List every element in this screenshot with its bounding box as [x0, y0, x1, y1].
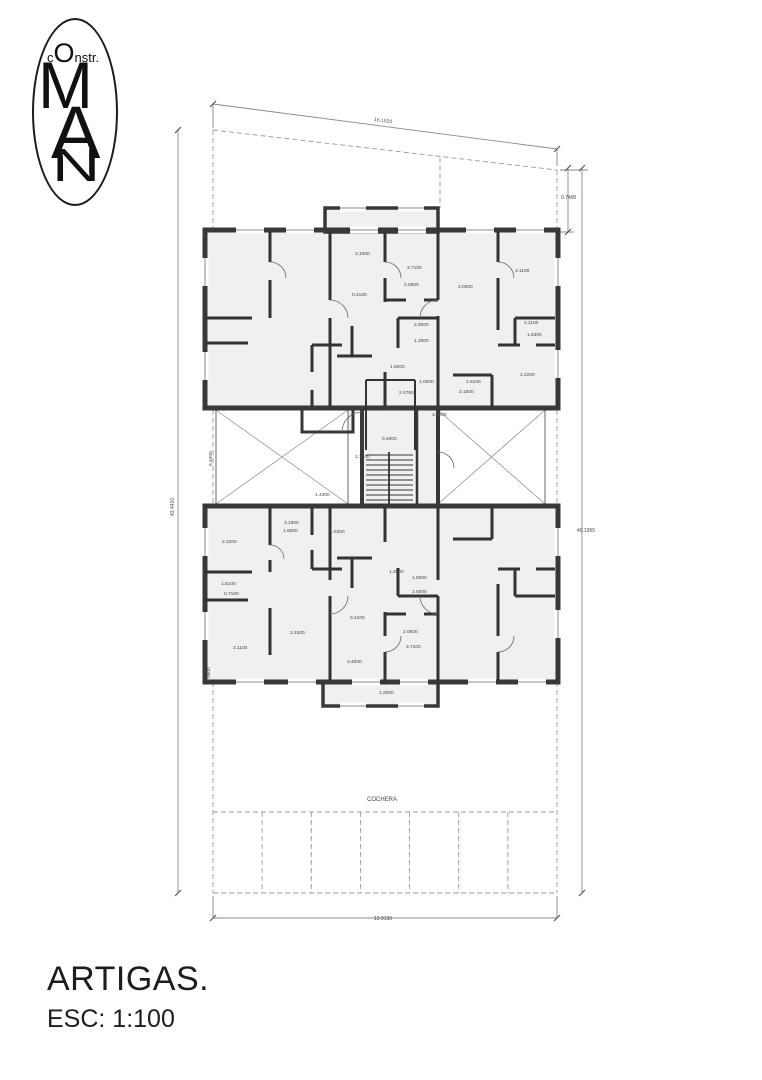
drawing-scale: ESC: 1:100 [47, 1005, 175, 1034]
dimension-label: 1.6100 [466, 379, 481, 385]
dimension-label: 0.4100 [350, 615, 365, 621]
dimension-label: 1.5300 [527, 332, 542, 338]
dimension-label: 3.0000 [383, 406, 398, 412]
dimension-label: 0.7100 [224, 591, 239, 597]
dimension-label: 16.1520 [374, 117, 393, 125]
floor-plan: 16.15200.749040.195543.44105.400013.9130… [0, 0, 762, 1080]
dimension-label: 1.4300 [315, 492, 330, 498]
dimension-label: 1.6300 [330, 529, 345, 535]
dimension-label: 3.1100 [515, 268, 530, 274]
dimension-label: 2.1500 [459, 389, 474, 395]
dimension-label: 1.2200 [520, 372, 535, 378]
dimension-label: 1.5100 [221, 581, 236, 587]
dimension-label: 3.7100 [406, 644, 421, 650]
dimension-label: 2.0600 [206, 667, 212, 682]
dimension-label: 0.7490 [561, 195, 577, 201]
dimension-label: 3.1900 [284, 520, 299, 526]
dimension-label: 0.4100 [352, 292, 367, 298]
dimension-label: 2.6000 [412, 589, 427, 595]
parking-label: COCHERA [367, 797, 397, 803]
dimension-label: 3.1000 [290, 630, 305, 636]
project-title: ARTIGAS. [47, 960, 209, 999]
dimension-label: 1.5000 [390, 364, 405, 370]
dimension-label: 3.4600 [347, 659, 362, 665]
dimension-label: 2.6000 [414, 322, 429, 328]
drawing-sheet: cOnstr. M A N [0, 0, 762, 1080]
dimension-label: 3.1100 [233, 645, 248, 651]
dimension-label: 0.4000 [382, 436, 397, 442]
dimension-label: 3.1600 [355, 251, 370, 257]
dimension-label: 43.4410 [170, 498, 176, 516]
dimension-label: 13.9130 [374, 916, 392, 922]
dimension-label: 2.4750 [399, 390, 414, 396]
dimension-label: 1.2000 [389, 569, 404, 575]
dimension-label: 2.0600 [404, 282, 419, 288]
dimension-label: 1.5000 [283, 528, 298, 534]
dimension-label: 1.5000 [412, 575, 427, 581]
dimension-label: 2.1100 [524, 320, 539, 326]
dimension-label: 5.4000 [208, 451, 214, 466]
parking-grid [262, 812, 508, 893]
dimension-label: 3.0000 [432, 412, 447, 418]
dimension-label: 3.7100 [407, 265, 422, 271]
dimension-label: 3.0000 [458, 284, 473, 290]
dimension-label: 1.2000 [379, 690, 394, 696]
dimension-label: 1.2000 [414, 338, 429, 344]
dimension-label: 40.1955 [577, 528, 595, 534]
dimension-label: 1.0000 [419, 379, 434, 385]
dimension-label: 2.2200 [222, 539, 237, 545]
dimension-label: 2.0600 [403, 629, 418, 635]
dimension-label: 1.1500 [355, 454, 370, 460]
